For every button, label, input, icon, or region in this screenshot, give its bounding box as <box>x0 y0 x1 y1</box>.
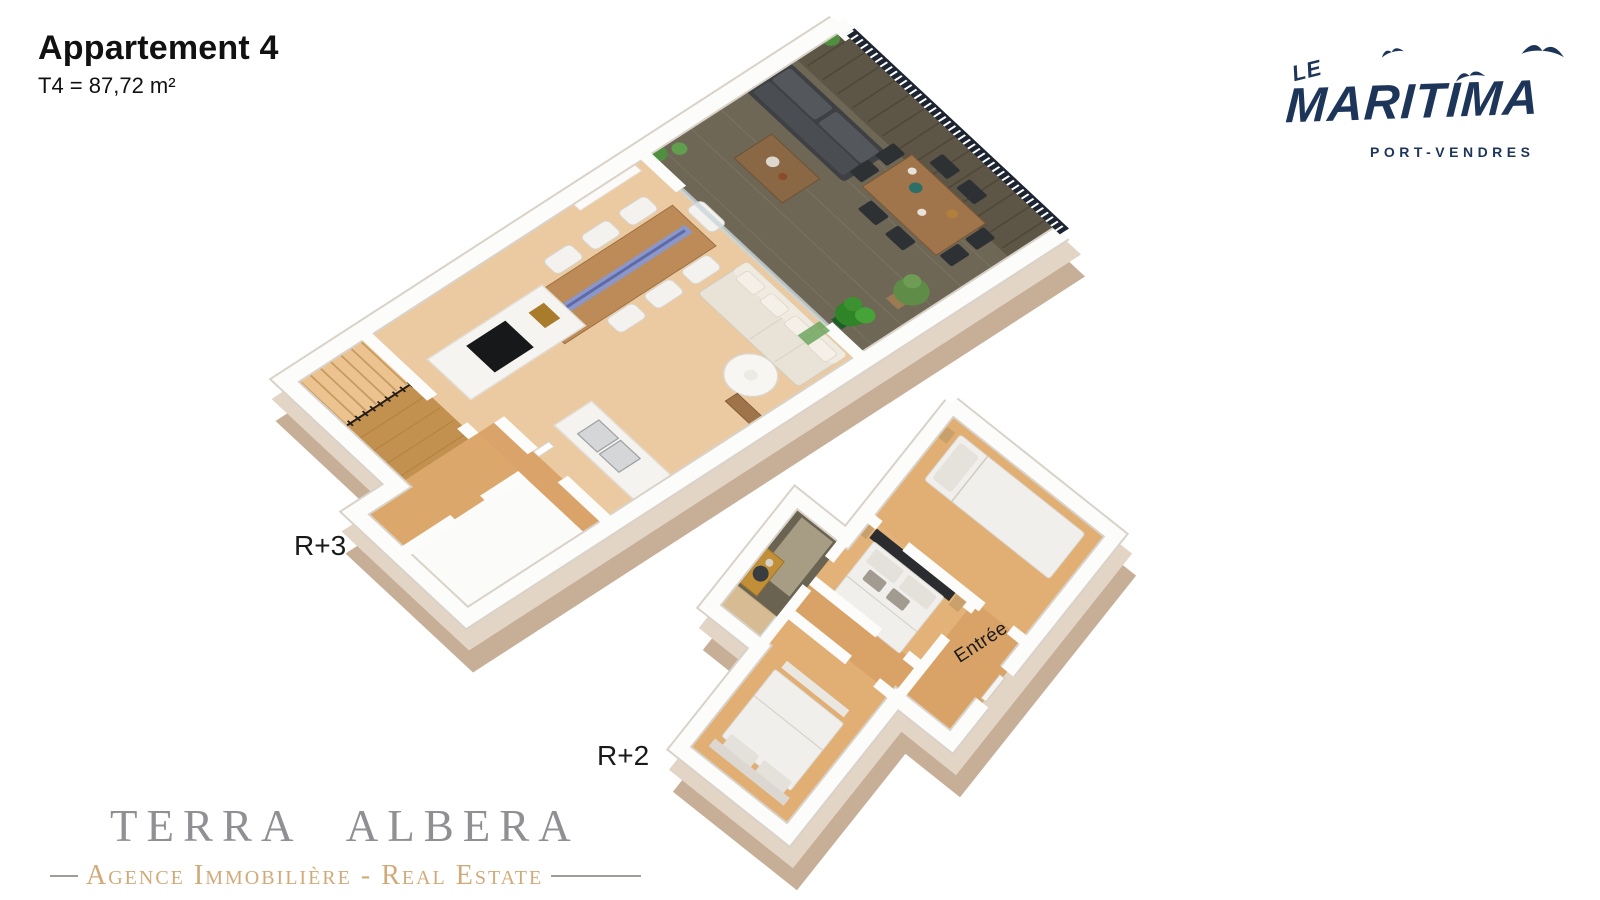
page: Appartement 4 T4 = 87,72 m² LE MARITIMA … <box>0 0 1600 900</box>
agency-name: TERRA ALBERA <box>110 800 580 852</box>
agency-tagline-row: Agence Immobilière - Real Estate <box>50 860 641 892</box>
floorplans <box>0 0 1600 900</box>
tagline-left-line <box>50 875 78 877</box>
agency-tagline: Agence Immobilière - Real Estate <box>86 860 543 892</box>
upper-floor-label: R+3 <box>294 530 346 562</box>
tagline-right-line <box>551 875 641 877</box>
lower-floor-label: R+2 <box>597 740 649 772</box>
